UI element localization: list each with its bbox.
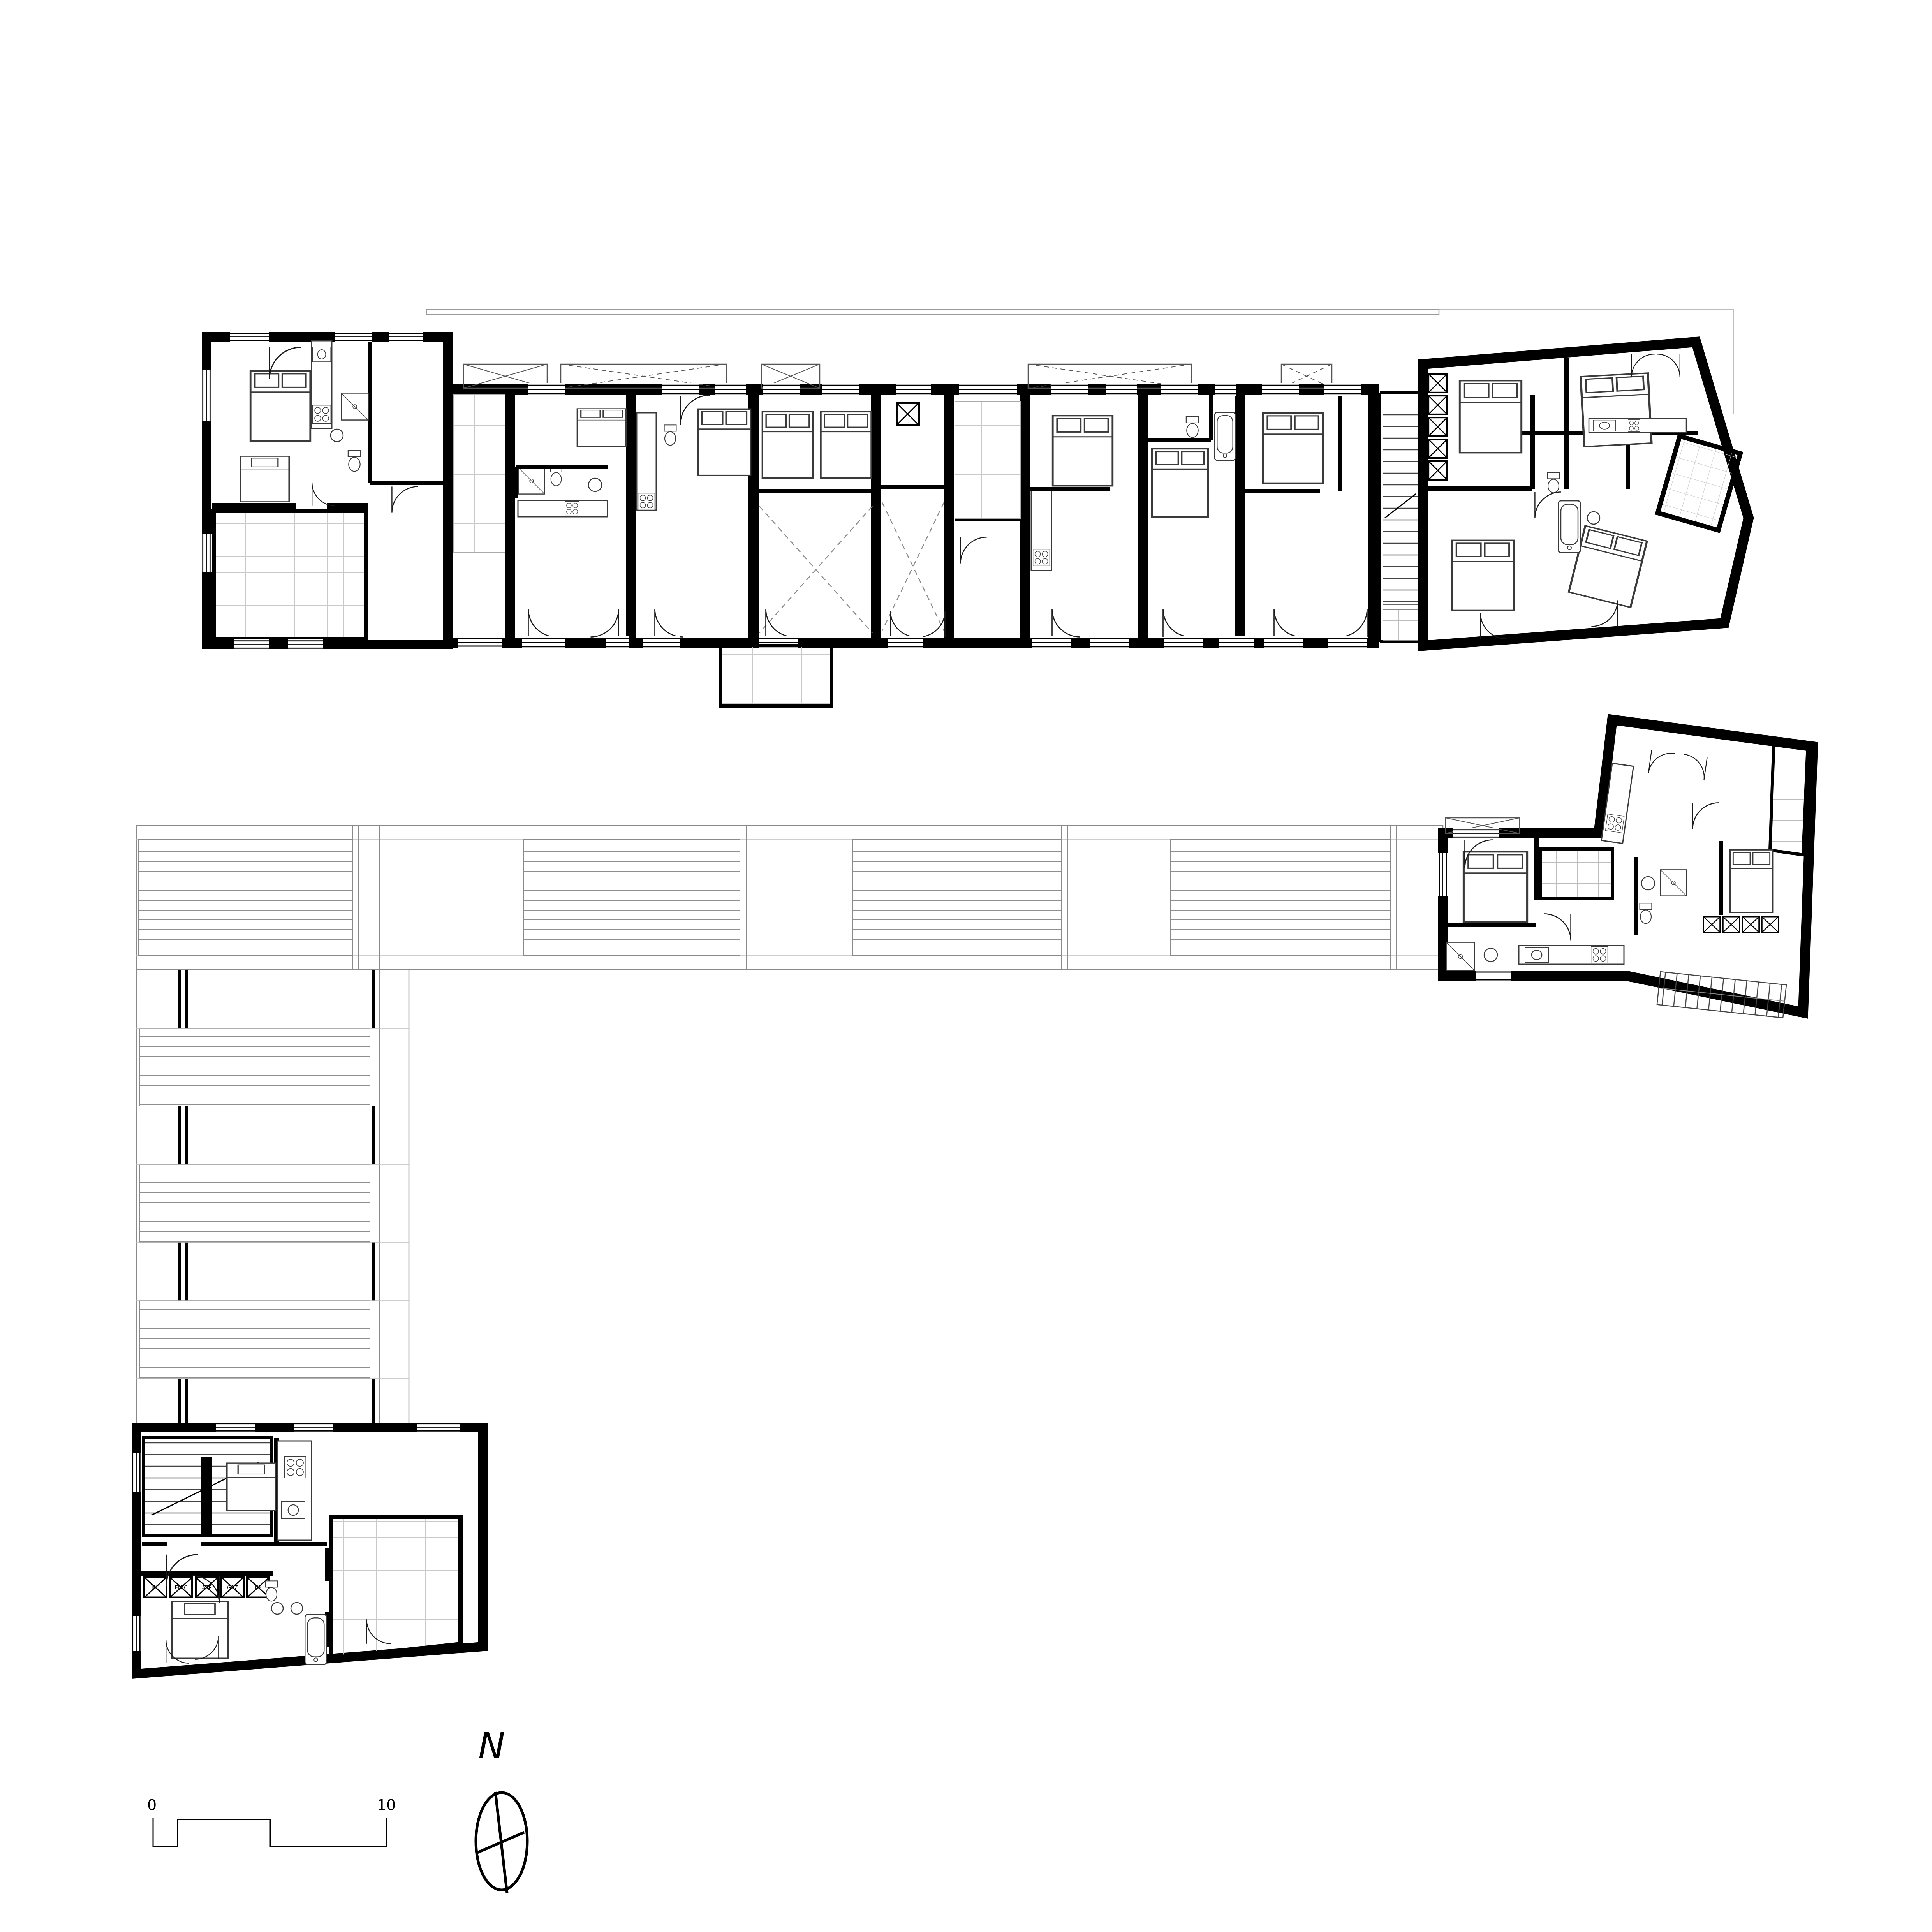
shaft-label: ELEC bbox=[175, 1585, 188, 1591]
unit-a bbox=[201, 331, 448, 650]
toilet bbox=[1640, 903, 1652, 923]
kitchen-sink bbox=[1525, 948, 1548, 962]
window bbox=[1453, 828, 1499, 839]
scale-bar: 0 10 bbox=[147, 1796, 396, 1846]
kitchen-sink bbox=[313, 347, 331, 362]
tiled-terrace bbox=[331, 1517, 461, 1658]
window bbox=[131, 1453, 142, 1492]
unit-a-terrace bbox=[213, 511, 366, 639]
bed bbox=[1053, 416, 1113, 486]
bed bbox=[1730, 850, 1773, 912]
bed bbox=[763, 412, 813, 478]
bed bbox=[821, 412, 872, 478]
window bbox=[335, 331, 372, 342]
central-terrace bbox=[955, 401, 1020, 519]
bed bbox=[1263, 413, 1323, 483]
bed bbox=[578, 409, 626, 446]
shaft-box bbox=[896, 403, 919, 425]
window bbox=[288, 639, 323, 650]
kitchen-sink bbox=[1593, 420, 1616, 431]
shower bbox=[1446, 942, 1475, 971]
cooktop bbox=[1591, 947, 1608, 963]
unit-bottom: EC ELEC ASP GAZ CF bbox=[131, 1422, 483, 1674]
shower bbox=[1660, 870, 1686, 896]
bed bbox=[250, 371, 310, 441]
bathtub bbox=[1215, 412, 1235, 460]
loggia-grid bbox=[1770, 740, 1808, 855]
walkway-horizontal bbox=[136, 826, 1443, 970]
bed bbox=[1460, 381, 1521, 453]
window bbox=[417, 1422, 460, 1433]
window bbox=[1437, 853, 1448, 896]
shaft-label: EC bbox=[152, 1585, 159, 1591]
window bbox=[1476, 970, 1511, 982]
bathtub bbox=[305, 1615, 327, 1664]
louver-panels-vertical bbox=[139, 1028, 370, 1379]
entry-terrace bbox=[454, 395, 505, 552]
apartment-band bbox=[448, 364, 1374, 706]
window bbox=[216, 1422, 255, 1433]
opening bbox=[458, 636, 502, 648]
stair-core bbox=[1380, 393, 1423, 642]
shower bbox=[518, 468, 544, 494]
cooktop bbox=[1605, 814, 1624, 833]
scale-start-label: 0 bbox=[147, 1796, 157, 1814]
window bbox=[294, 1422, 333, 1433]
window bbox=[230, 331, 269, 342]
shaft-label: CF bbox=[255, 1585, 262, 1591]
bed bbox=[227, 1463, 276, 1511]
kitchen-counter bbox=[277, 1441, 312, 1540]
shaft-column bbox=[1428, 374, 1447, 480]
bed bbox=[698, 409, 750, 475]
north-label: N bbox=[478, 1725, 505, 1767]
toilet bbox=[266, 1581, 278, 1601]
cooktop bbox=[285, 1457, 306, 1478]
window bbox=[389, 331, 423, 342]
kitchen-sink bbox=[282, 1502, 305, 1518]
toilet bbox=[1186, 416, 1199, 437]
floor-plan: EC ELEC ASP GAZ CF 0 10 N bbox=[0, 0, 1932, 1932]
stair-landing bbox=[1383, 609, 1418, 641]
cooktop bbox=[313, 405, 331, 424]
cooktop bbox=[638, 493, 655, 510]
bed bbox=[172, 1601, 228, 1658]
window bbox=[201, 534, 212, 572]
window bbox=[234, 639, 269, 650]
window bbox=[131, 1616, 142, 1651]
stair-flight bbox=[1383, 405, 1418, 604]
shaft-label: ASP bbox=[202, 1585, 212, 1591]
cooktop bbox=[565, 501, 579, 516]
shaft-label: GAZ bbox=[227, 1585, 238, 1591]
window bbox=[201, 370, 212, 421]
north-arrow: N bbox=[476, 1725, 527, 1893]
toilet bbox=[664, 425, 676, 445]
bed bbox=[1464, 852, 1527, 922]
bathtub bbox=[1558, 501, 1581, 553]
bed bbox=[1152, 449, 1208, 517]
cooktop bbox=[1628, 419, 1640, 431]
scale-bar-profile bbox=[153, 1818, 386, 1846]
loggia-grid bbox=[1540, 849, 1612, 899]
bed bbox=[1452, 540, 1513, 610]
toilet bbox=[1548, 472, 1560, 493]
scale-end-label: 10 bbox=[377, 1796, 396, 1814]
bed bbox=[241, 456, 289, 502]
unit-end bbox=[1423, 342, 1749, 646]
shower bbox=[341, 393, 368, 420]
bed bbox=[1581, 373, 1652, 447]
lower-terrace bbox=[720, 646, 831, 706]
unit-detached bbox=[1437, 720, 1813, 1018]
cooktop bbox=[1033, 549, 1050, 566]
toilet bbox=[348, 450, 361, 471]
drawing-sheet: EC ELEC ASP GAZ CF 0 10 N bbox=[0, 0, 1932, 1932]
kitchen-counter bbox=[518, 500, 608, 517]
